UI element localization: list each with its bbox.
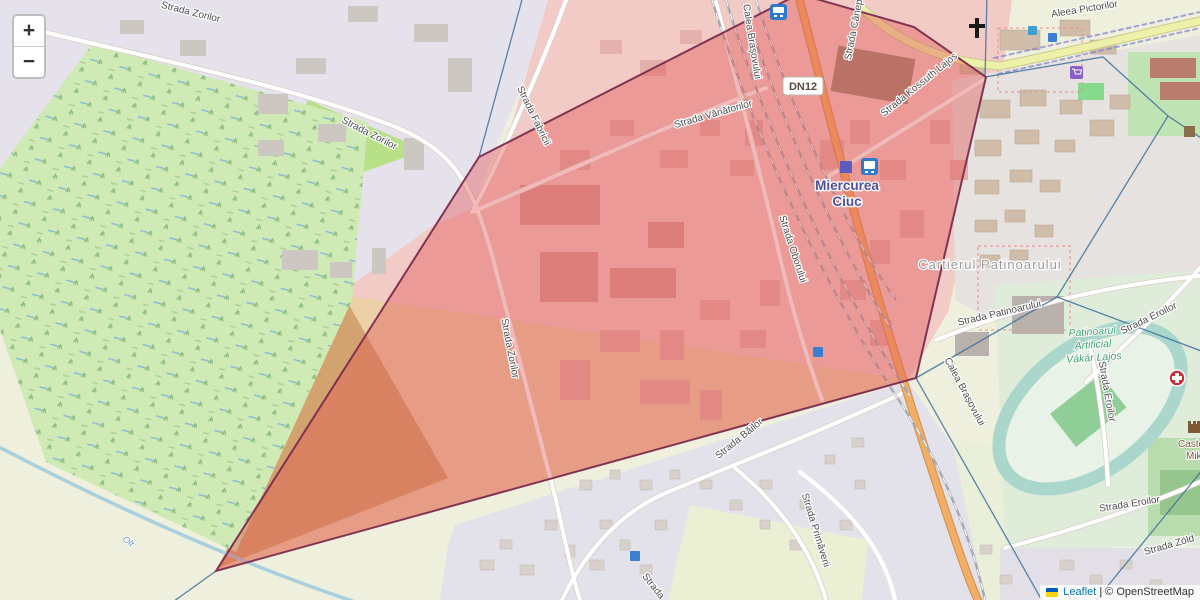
map-canvas[interactable]: Strada ZorilorStrada ZorilorStrada Fabri… [0, 0, 1200, 600]
ukraine-flag-icon [1046, 588, 1058, 597]
zoom-out-button[interactable]: − [14, 47, 44, 77]
railway-station-icon [840, 161, 852, 173]
leaflet-link[interactable]: Leaflet [1063, 586, 1096, 598]
hospital-cross-icon [1169, 370, 1185, 386]
city-label-line1: Miercurea [815, 178, 879, 193]
bus-stop-icon [770, 4, 787, 20]
map-viewport[interactable]: Strada ZorilorStrada ZorilorStrada Fabri… [0, 0, 1200, 600]
neighborhood-label: Cartierul Patinoarului [918, 257, 1061, 272]
zoom-in-button[interactable]: + [14, 16, 44, 47]
attribution-separator: | [1099, 586, 1102, 598]
castle-icon [1188, 421, 1200, 433]
road-ref-text: DN12 [789, 81, 817, 93]
zoom-control: + − [12, 14, 46, 79]
train-station-icon [861, 158, 878, 175]
castle-label-line1: Castelul [1178, 439, 1200, 450]
castle-label-line2: Mikó [1186, 451, 1200, 462]
bank-icon [1184, 126, 1195, 137]
city-label-line2: Ciuc [832, 194, 862, 209]
osm-credit: © OpenStreetMap [1105, 586, 1194, 598]
supermarket-cart-icon [1070, 66, 1083, 79]
attribution-bar: Leaflet | © OpenStreetMap [1040, 585, 1200, 600]
road-ref-badge: DN12 [783, 77, 823, 95]
